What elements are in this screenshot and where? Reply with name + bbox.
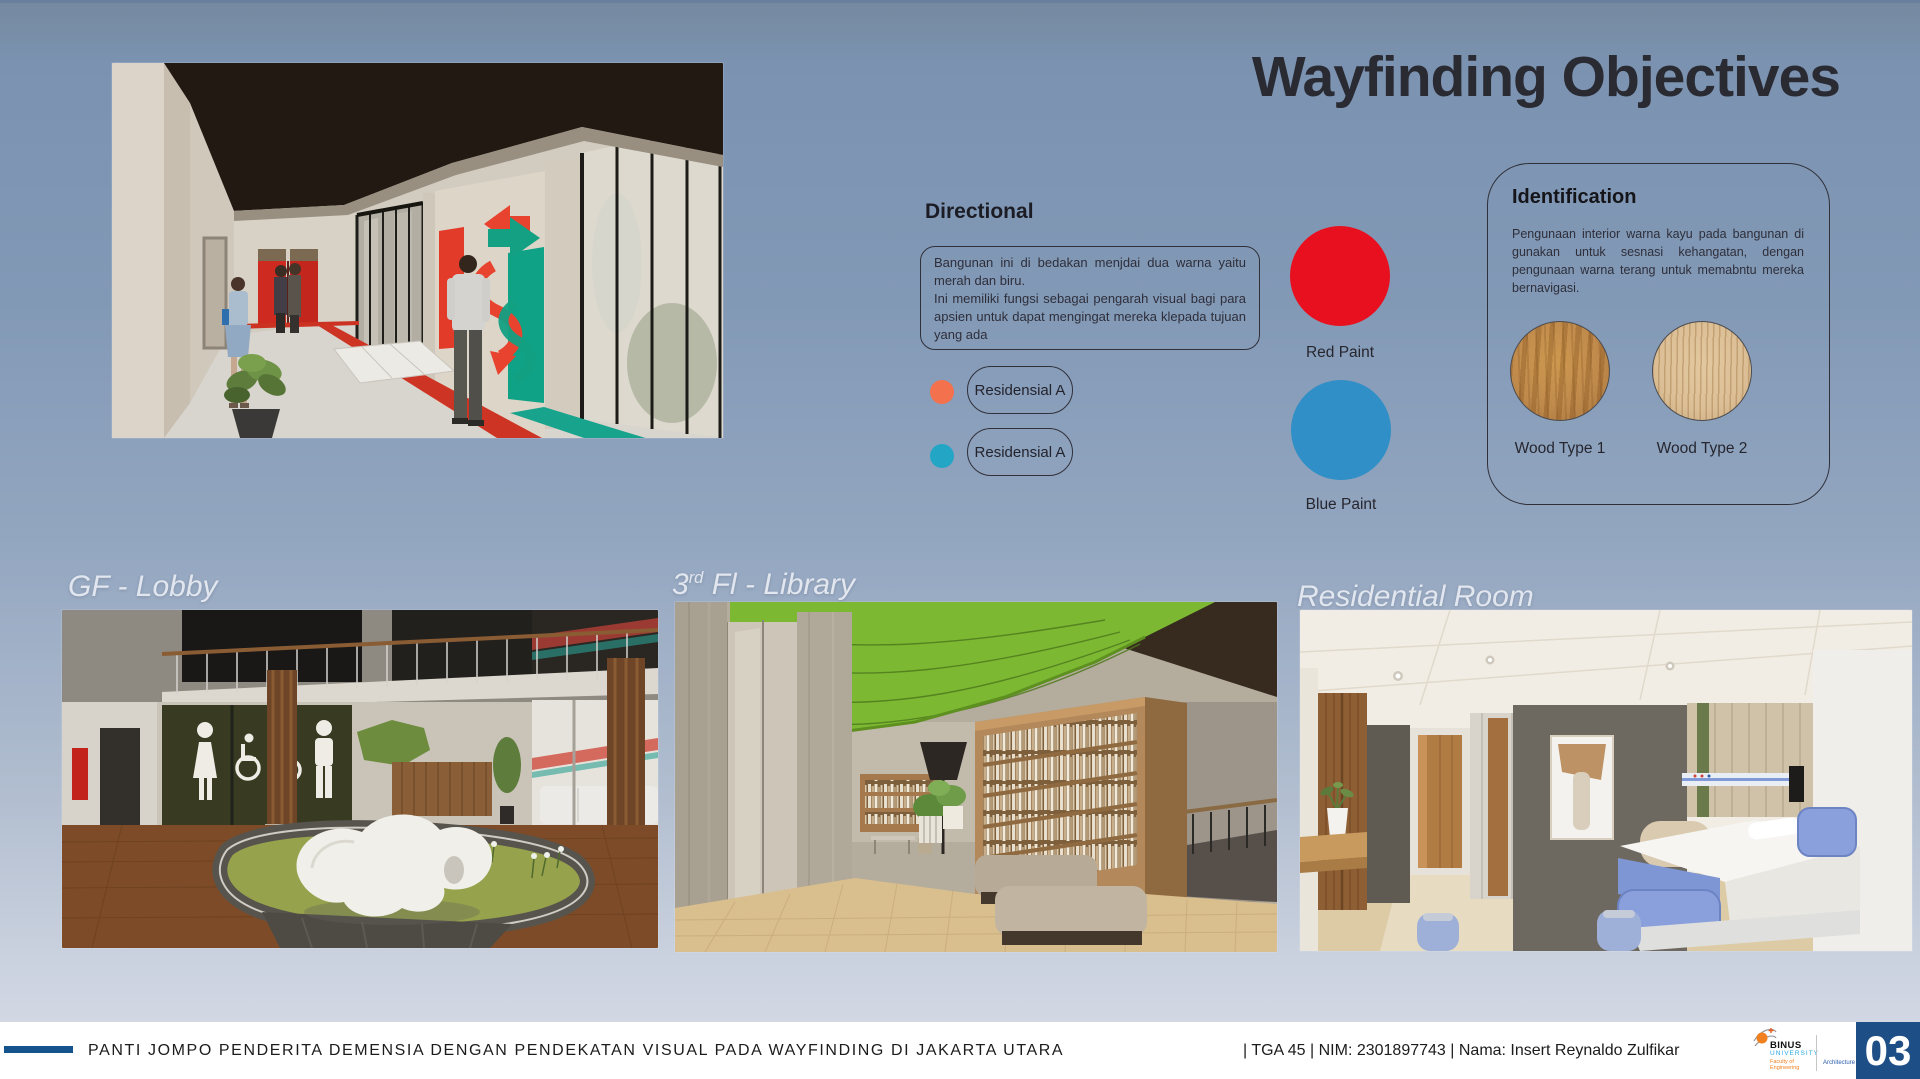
wood-type-2-swatch [1652,321,1752,421]
hero-corridor-render [112,63,723,438]
residential-illustration [1300,610,1912,951]
identification-heading: Identification [1512,186,1805,209]
lobby-illustration [62,610,658,948]
top-edge-line [0,0,1920,3]
identification-body: Pengunaan interior warna kayu pada bangu… [1512,225,1804,298]
legend-dot-orange [930,380,954,404]
section-label-lobby: GF - Lobby [68,570,218,604]
legend-pill-residensial-a-2: Residensial A [967,428,1073,476]
wood-type-1-label: Wood Type 1 [1495,440,1625,458]
red-paint-label: Red Paint [1275,344,1405,362]
binus-logo: BINUS UNIVERSITY Faculty of Engineering … [1752,1023,1854,1078]
submission-meta: | TGA 45 | NIM: 2301897743 | Nama: Inser… [1243,1022,1679,1079]
blue-paint-label: Blue Paint [1276,496,1406,514]
red-paint-swatch [1290,226,1390,326]
library-label-rest: Fl - Library [703,568,855,601]
footer-accent-bar [4,1046,73,1053]
lobby-render [62,610,658,948]
directional-note-box: Bangunan ini di bedakan menjdai dua warn… [920,246,1260,350]
binus-logo-university: UNIVERSITY [1770,1050,1819,1057]
residential-render [1300,610,1912,951]
legend-label-1: Residensial A [975,382,1066,399]
blue-paint-swatch [1291,380,1391,480]
binus-logo-department: Architecture [1823,1060,1855,1066]
legend-label-2: Residensial A [975,444,1066,461]
section-label-library: 3rd Fl - Library [672,568,855,602]
wood-type-1-swatch [1510,321,1610,421]
directional-note-line1: Bangunan ini di bedakan menjdai dua warn… [934,254,1246,290]
wood-type-2-label: Wood Type 2 [1637,440,1767,458]
page-number-badge: 03 [1856,1022,1920,1079]
library-illustration [675,602,1277,952]
library-render [675,602,1277,952]
corridor-illustration [112,63,723,438]
legend-pill-residensial-a-1: Residensial A [967,366,1073,414]
library-label-sup: rd [689,569,704,587]
project-title: PANTI JOMPO PENDERITA DEMENSIA DENGAN PE… [88,1022,1064,1079]
directional-note-line2: Ini memiliki fungsi sebagai pengarah vis… [934,290,1246,344]
binus-logo-faculty-line2: Engineering [1770,1065,1799,1071]
directional-heading: Directional [925,200,1034,224]
legend-dot-blue [930,444,954,468]
library-label-prefix: 3 [672,568,689,601]
footer: PANTI JOMPO PENDERITA DEMENSIA DENGAN PE… [0,1022,1920,1079]
wall-art-frame [1551,736,1613,839]
binus-logo-divider [1816,1035,1817,1071]
section-label-residential: Residential Room [1297,580,1534,614]
presentation-board: Wayfinding Objectives Directional Bangun… [0,0,1920,1079]
page-title: Wayfinding Objectives [1000,44,1840,114]
